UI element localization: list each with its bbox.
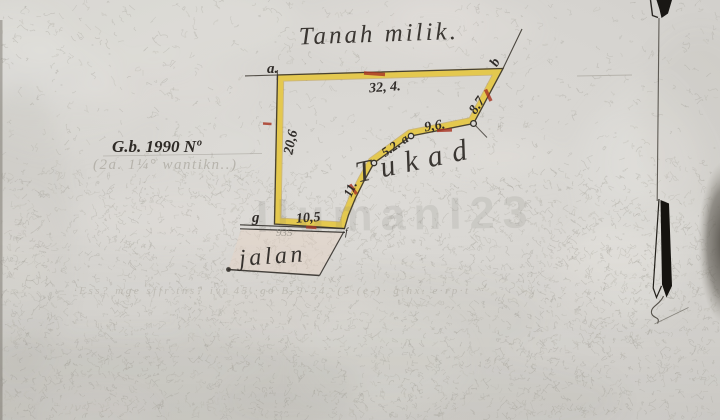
svg-text:g: g	[251, 210, 260, 226]
svg-text:jalan: jalan	[235, 241, 306, 272]
svg-text:G.b. 1990 Nº: G.b. 1990 Nº	[112, 137, 202, 156]
svg-text:a.: a.	[267, 61, 278, 77]
svg-text:(2a. 1¼° wantikn..): (2a. 1¼° wantikn..)	[93, 157, 238, 173]
svg-text:935: 935	[276, 227, 293, 239]
svg-text:·Ess? mge sffr tns? ivt 45 ·go: ·Ess? mge sffr tns? ivt 45 ·go B-9-24. (…	[74, 285, 486, 297]
svg-text:10,5: 10,5	[296, 210, 321, 227]
svg-text:Tanah milik.: Tanah milik.	[298, 18, 459, 51]
svg-text:32, 4.: 32, 4.	[368, 79, 401, 96]
